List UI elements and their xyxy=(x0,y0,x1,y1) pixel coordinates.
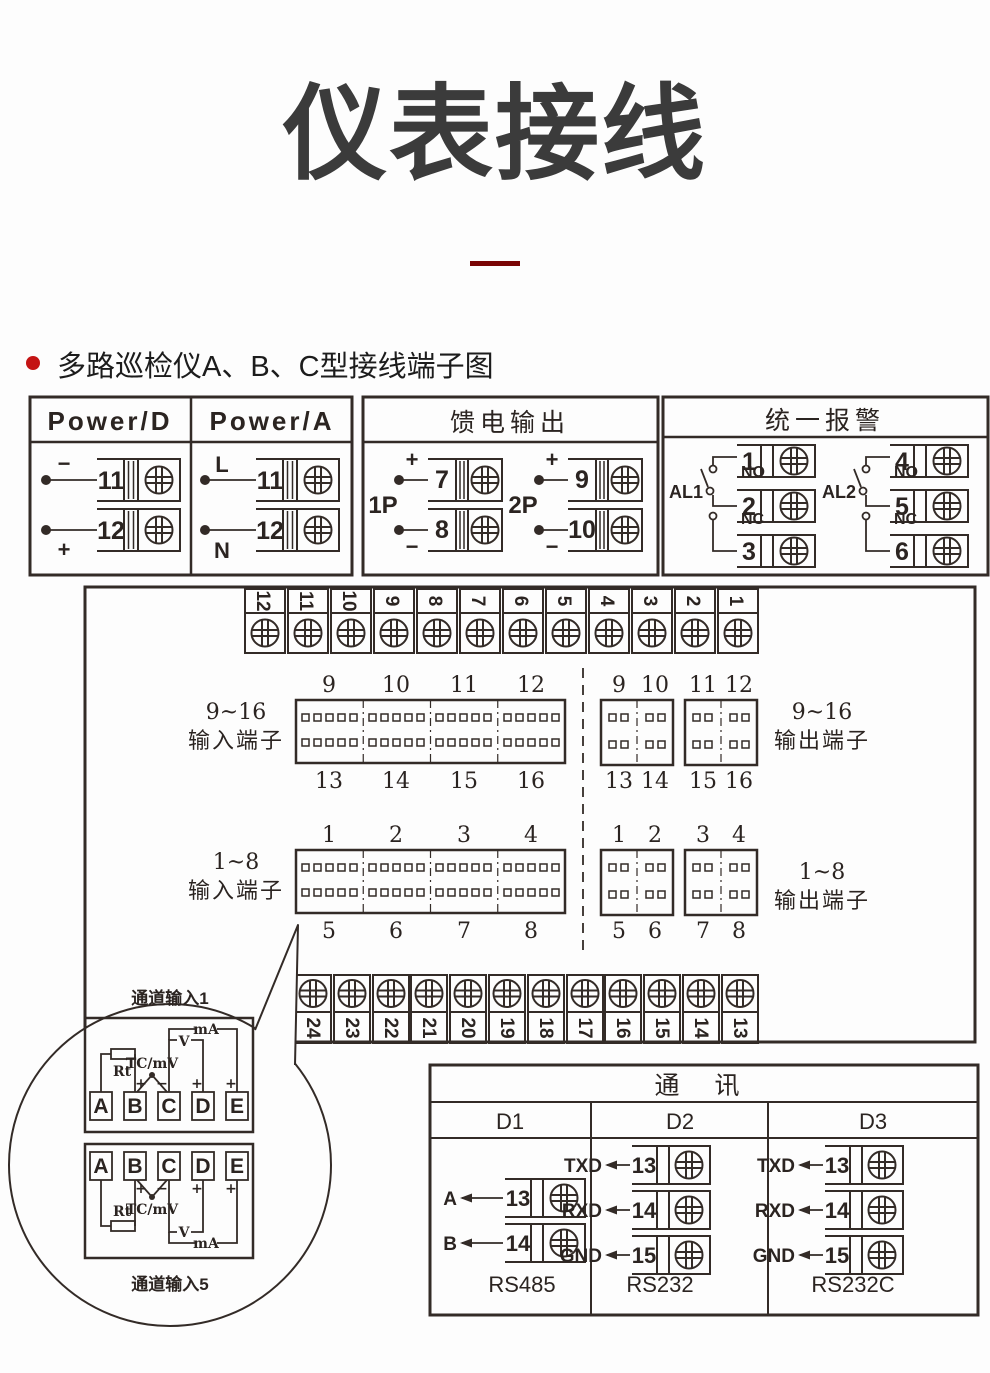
plus-sign: + xyxy=(406,447,419,472)
terminal-number: 7 xyxy=(435,466,449,494)
terminal-number: 3 xyxy=(742,538,756,566)
channel-number: 6 xyxy=(648,919,662,944)
screw-icon xyxy=(467,620,494,647)
channel-number: 13 xyxy=(315,769,343,794)
channel-number: 9 xyxy=(612,673,626,698)
tc-mv-label: TC/mV xyxy=(126,1056,179,1072)
feed-output-box: 馈电输出 1P 7 8 + − 2P 9 10 + − xyxy=(363,397,658,575)
screw-icon xyxy=(682,620,709,647)
channel-number: 4 xyxy=(732,823,746,848)
comm-standard-label: RS485 xyxy=(488,1272,555,1297)
screw-icon xyxy=(781,538,808,565)
strip-number: 18 xyxy=(535,1017,556,1038)
comm-port-d3: TXD 13 RXD 14 GND 15 RS232C xyxy=(753,1146,903,1297)
screw-icon xyxy=(869,1242,896,1269)
comm-box: 通 讯 D1 D2 D3 A 13 B 14 RS485 TXD xyxy=(430,1065,978,1315)
block-label: 输出端子 xyxy=(774,888,870,913)
terminal-letter: B xyxy=(127,1095,142,1118)
screw-icon xyxy=(146,517,173,544)
screw-icon xyxy=(869,1152,896,1179)
terminal-letter: C xyxy=(161,1155,176,1178)
strip-number: 12 xyxy=(252,590,273,611)
power-a-header: Power/A xyxy=(209,406,334,436)
strip-number: 5 xyxy=(553,596,574,607)
screw-icon xyxy=(869,1197,896,1224)
strip-number: 24 xyxy=(302,1017,323,1039)
block-range-label: 1~8 xyxy=(213,850,259,875)
alarm-group-al2: 4 5 6 NO AL2 NC xyxy=(822,445,968,567)
signal-label: RXD xyxy=(562,1201,602,1222)
channel-number: 8 xyxy=(524,919,538,944)
no-contact-label: NO xyxy=(894,464,918,481)
group-label: 2P xyxy=(508,492,537,519)
signal-label: TXD xyxy=(757,1156,795,1177)
signal-label: GND xyxy=(753,1246,795,1267)
channel-number: 1 xyxy=(322,823,336,848)
strip-number: 11 xyxy=(295,591,316,612)
plus-sign: + xyxy=(135,1076,147,1092)
comm-port-d1: A 13 B 14 RS485 xyxy=(443,1179,585,1297)
input-block-1-8: 1 2 3 4 5 6 7 8 1~8 输入端子 xyxy=(188,823,565,944)
channel-number: 2 xyxy=(389,823,403,848)
channel-number: 6 xyxy=(389,919,403,944)
strip-number: 14 xyxy=(690,1017,711,1039)
signal-label: TXD xyxy=(564,1156,602,1177)
strip-number: 19 xyxy=(496,1017,517,1038)
strip-number: 10 xyxy=(338,590,359,611)
comm-box-title: 通 讯 xyxy=(655,1072,754,1100)
terminal-number: 10 xyxy=(568,516,596,544)
terminal-letter: E xyxy=(230,1095,244,1118)
terminal-number: 11 xyxy=(98,467,125,495)
signal-label: RXD xyxy=(755,1201,795,1222)
alarm-box: 统一报警 1 2 3 NO AL1 NC xyxy=(663,397,988,575)
polarity-sign: − xyxy=(58,451,71,476)
terminal-number: 8 xyxy=(435,516,449,544)
terminal-number: 14 xyxy=(506,1231,531,1256)
terminal-number: 13 xyxy=(506,1186,530,1211)
channel-number: 11 xyxy=(450,673,478,698)
channel-number: 2 xyxy=(648,823,662,848)
channel-input-callout: 通道输入1 A B C D E Rt TC/mV + − + + V xyxy=(9,925,331,1326)
strip-number: 3 xyxy=(639,596,660,607)
screw-icon xyxy=(781,493,808,520)
screw-icon xyxy=(378,980,405,1007)
strip-number: 7 xyxy=(467,596,488,607)
block-label: 输入端子 xyxy=(188,878,284,903)
plus-sign: + xyxy=(191,1181,203,1197)
terminal-number: 12 xyxy=(97,517,125,545)
channel-number: 7 xyxy=(696,919,710,944)
main-board-box: 12 11 10 9 8 7 6 5 4 3 2 1 9 xyxy=(85,587,975,1043)
screw-icon xyxy=(727,980,754,1007)
port-header: D3 xyxy=(859,1109,887,1134)
terminal-letter: D xyxy=(195,1095,210,1118)
screw-icon xyxy=(533,980,560,1007)
feed-box-title: 馈电输出 xyxy=(450,409,570,437)
block-label: 输入端子 xyxy=(188,728,284,753)
signal-label: A xyxy=(443,1189,457,1210)
neutral-sign: N xyxy=(214,538,230,563)
alarm-group-label: AL2 xyxy=(822,482,856,502)
strip-number: 2 xyxy=(682,596,703,607)
strip-number: 23 xyxy=(341,1017,362,1038)
block-range-label: 9~16 xyxy=(792,700,852,725)
plus-sign: + xyxy=(191,1076,203,1092)
screw-icon xyxy=(416,980,443,1007)
wiring-diagram: Power/D Power/A 11 12 − + 11 12 L xyxy=(0,0,990,1373)
comm-standard-label: RS232C xyxy=(811,1272,894,1297)
plus-sign: + xyxy=(135,1181,147,1197)
screw-icon xyxy=(424,620,451,647)
channel-number: 14 xyxy=(382,769,410,794)
terminal-number: 15 xyxy=(825,1243,849,1268)
strip-number: 17 xyxy=(574,1017,595,1038)
minus-sign: − xyxy=(156,1181,168,1197)
port-header: D2 xyxy=(666,1109,694,1134)
strip-number: 15 xyxy=(651,1017,672,1039)
screw-icon xyxy=(305,467,332,494)
channel-number: 4 xyxy=(524,823,538,848)
terminal-letter: D xyxy=(195,1155,210,1178)
screw-icon xyxy=(596,620,623,647)
channel-number: 10 xyxy=(382,673,410,698)
signal-label: B xyxy=(443,1234,457,1255)
screw-icon xyxy=(676,1197,703,1224)
alarm-group-al1: 1 2 3 NO AL1 NC xyxy=(669,445,815,567)
channel-number: 1 xyxy=(612,823,626,848)
channel-number: 15 xyxy=(689,769,717,794)
input-block-9-16: 9 10 11 12 13 14 15 16 9~16 输入端子 xyxy=(188,673,565,794)
screw-icon xyxy=(934,538,961,565)
strip-number: 16 xyxy=(612,1017,633,1038)
terminal-number: 6 xyxy=(895,538,909,566)
minus-sign: − xyxy=(546,534,559,559)
channel-number: 3 xyxy=(457,823,471,848)
strip-number: 13 xyxy=(729,1017,750,1038)
screw-icon xyxy=(639,620,666,647)
no-contact-label: NO xyxy=(741,464,765,481)
strip-number: 21 xyxy=(418,1017,439,1039)
channel-number: 11 xyxy=(689,673,717,698)
plus-sign: + xyxy=(546,447,559,472)
screw-icon xyxy=(472,467,499,494)
bottom-terminal-strip: 24 23 22 21 20 19 18 17 16 15 14 13 xyxy=(295,975,758,1043)
terminal-number: 14 xyxy=(632,1198,657,1223)
channel-number: 12 xyxy=(517,673,545,698)
power-box: Power/D Power/A 11 12 − + 11 12 L xyxy=(30,397,352,575)
screw-icon xyxy=(572,980,599,1007)
nc-contact-label: NC xyxy=(741,511,765,528)
channel-number: 14 xyxy=(641,769,669,794)
wiring-diagram-page: 仪表接线 多路巡检仪A、B、C型接线端子图 Power/D Power/A xyxy=(0,0,990,1373)
strip-number: 8 xyxy=(424,596,445,607)
strip-number: 22 xyxy=(380,1017,401,1038)
plus-sign: + xyxy=(225,1181,237,1197)
v-label: V xyxy=(178,1034,191,1050)
screw-icon xyxy=(300,980,327,1007)
screw-icon xyxy=(934,493,961,520)
channel-number: 3 xyxy=(696,823,710,848)
channel-input-5-label: 通道输入5 xyxy=(131,1274,208,1294)
screw-icon xyxy=(472,517,499,544)
signal-label: GND xyxy=(560,1246,602,1267)
terminal-number: 14 xyxy=(825,1198,850,1223)
channel-number: 12 xyxy=(725,673,753,698)
block-label: 输出端子 xyxy=(774,728,870,753)
channel-number: 13 xyxy=(605,769,633,794)
port-header: D1 xyxy=(496,1109,524,1134)
screw-icon xyxy=(146,467,173,494)
screw-icon xyxy=(510,620,537,647)
terminal-number: 9 xyxy=(575,466,589,494)
screw-icon xyxy=(339,980,366,1007)
channel-number: 15 xyxy=(450,769,478,794)
ma-label: mA xyxy=(193,1022,220,1038)
comm-standard-label: RS232 xyxy=(626,1272,693,1297)
screw-icon xyxy=(725,620,752,647)
ma-label: mA xyxy=(193,1236,220,1252)
channel-number: 5 xyxy=(322,919,336,944)
minus-sign: − xyxy=(406,534,419,559)
screw-icon xyxy=(612,517,639,544)
power-d-header: Power/D xyxy=(47,406,172,436)
channel-number: 16 xyxy=(725,769,753,794)
nc-contact-label: NC xyxy=(894,511,918,528)
block-range-label: 1~8 xyxy=(799,860,845,885)
v-label: V xyxy=(178,1225,191,1241)
alarm-group-label: AL1 xyxy=(669,482,703,502)
screw-icon xyxy=(649,980,676,1007)
channel-number: 10 xyxy=(641,673,669,698)
strip-number: 6 xyxy=(510,596,531,607)
screw-icon xyxy=(455,980,482,1007)
terminal-number: 13 xyxy=(825,1153,849,1178)
output-block-9-16: 9 10 11 12 13 14 15 16 9~16 输出端子 xyxy=(601,673,870,794)
group-label: 1P xyxy=(368,492,397,519)
screw-icon xyxy=(610,980,637,1007)
terminal-number: 15 xyxy=(632,1243,656,1268)
terminal-letter: A xyxy=(93,1095,108,1118)
terminal-letter: C xyxy=(161,1095,176,1118)
alarm-box-title: 统一报警 xyxy=(765,407,885,435)
screw-icon xyxy=(252,620,279,647)
strip-number: 1 xyxy=(725,596,746,607)
terminal-letter: A xyxy=(93,1155,108,1178)
terminal-number: 13 xyxy=(632,1153,656,1178)
channel-number: 16 xyxy=(517,769,545,794)
terminal-letter: E xyxy=(230,1155,244,1178)
channel-number: 9 xyxy=(322,673,336,698)
screw-icon xyxy=(494,980,521,1007)
channel-input-1-label: 通道输入1 xyxy=(131,988,208,1008)
screw-icon xyxy=(612,467,639,494)
terminal-number: 12 xyxy=(256,517,284,545)
channel-number: 8 xyxy=(732,919,746,944)
screw-icon xyxy=(934,448,961,475)
screw-icon xyxy=(295,620,322,647)
channel-number: 5 xyxy=(612,919,626,944)
top-terminal-strip: 12 11 10 9 8 7 6 5 4 3 2 1 xyxy=(245,589,758,653)
comm-port-d2: TXD 13 RXD 14 GND 15 RS232 xyxy=(560,1146,710,1297)
screw-icon xyxy=(676,1242,703,1269)
screw-icon xyxy=(781,448,808,475)
line-sign: L xyxy=(215,452,228,477)
polarity-sign: + xyxy=(58,537,71,562)
minus-sign: − xyxy=(156,1076,168,1092)
block-range-label: 9~16 xyxy=(206,700,266,725)
screw-icon xyxy=(676,1152,703,1179)
screw-icon xyxy=(553,620,580,647)
screw-icon xyxy=(305,517,332,544)
strip-number: 4 xyxy=(596,596,617,607)
plus-sign: + xyxy=(225,1076,237,1092)
output-block-1-8: 1 2 3 4 5 6 7 8 1~8 输出端子 xyxy=(601,823,870,944)
channel-number: 7 xyxy=(457,919,471,944)
screw-icon xyxy=(688,980,715,1007)
screw-icon xyxy=(381,620,408,647)
strip-number: 20 xyxy=(457,1017,478,1038)
screw-icon xyxy=(338,620,365,647)
tc-mv-label: TC/mV xyxy=(126,1202,179,1218)
terminal-number: 11 xyxy=(257,467,284,495)
strip-number: 9 xyxy=(381,596,402,607)
terminal-letter: B xyxy=(127,1155,142,1178)
